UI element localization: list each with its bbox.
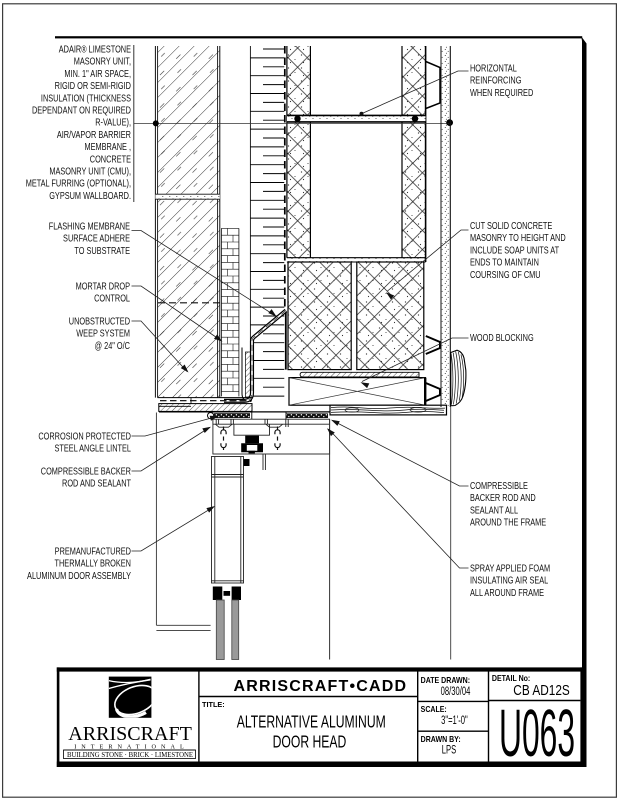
svg-text:MEMBRANE ,: MEMBRANE , [84,141,131,152]
svg-text:TITLE:: TITLE: [202,700,225,709]
svg-text:COMPRESSIBLE BACKER: COMPRESSIBLE BACKER [41,465,131,476]
svg-text:U063: U063 [499,696,575,771]
svg-text:ALL AROUND FRAME: ALL AROUND FRAME [470,587,544,598]
svg-text:CONTROL: CONTROL [94,293,130,304]
svg-text:COMPRESSIBLE: COMPRESSIBLE [470,480,528,491]
svg-text:BACKER ROD AND: BACKER ROD AND [470,492,536,503]
svg-text:CONCRETE: CONCRETE [90,153,131,164]
svg-text:SURFACE ADHERE: SURFACE ADHERE [63,233,130,244]
svg-text:DRAWN BY:: DRAWN BY: [421,735,461,745]
svg-text:WEEP SYSTEM: WEEP SYSTEM [76,328,130,339]
svg-text:SCALE:: SCALE: [421,705,447,715]
svg-text:MASONRY TO HEIGHT AND: MASONRY TO HEIGHT AND [470,232,566,243]
svg-text:RIGID OR SEMI-RIGID: RIGID OR SEMI-RIGID [55,80,131,91]
svg-text:UNOBSTRUCTED: UNOBSTRUCTED [69,315,130,326]
svg-text:CUT SOLID CONCRETE: CUT SOLID CONCRETE [470,220,552,231]
svg-text:ALUMINUM DOOR ASSEMBLY: ALUMINUM DOOR ASSEMBLY [27,570,131,581]
svg-text:BUILDING STONE · BRICK · LIMES: BUILDING STONE · BRICK · LIMESTONE [67,751,193,759]
svg-text:ADAIR® LIMESTONE: ADAIR® LIMESTONE [59,43,131,54]
svg-text:CORROSION PROTECTED: CORROSION PROTECTED [38,430,131,441]
svg-text:@ 24" O/C: @ 24" O/C [95,340,130,351]
svg-text:SPRAY APPLIED FOAM: SPRAY APPLIED FOAM [470,562,550,573]
svg-text:INSULATING AIR SEAL: INSULATING AIR SEAL [470,575,548,586]
svg-text:GYPSUM WALLBOARD.: GYPSUM WALLBOARD. [49,190,131,201]
svg-text:HORIZONTAL: HORIZONTAL [470,62,517,73]
svg-text:ARRISCRAFT: ARRISCRAFT [68,724,192,745]
svg-text:MORTAR DROP: MORTAR DROP [76,280,131,291]
svg-text:DATE DRAWN:: DATE DRAWN: [421,676,470,686]
svg-text:AROUND THE FRAME: AROUND THE FRAME [470,517,546,528]
svg-text:PREMANUFACTURED: PREMANUFACTURED [55,545,131,556]
svg-text:INSULATION (THICKNESS: INSULATION (THICKNESS [41,92,131,103]
svg-text:MIN. 1" AIR SPACE,: MIN. 1" AIR SPACE, [64,68,131,79]
svg-text:ROD AND SEALANT: ROD AND SEALANT [62,478,132,489]
svg-text:METAL FURRING (OPTIONAL),: METAL FURRING (OPTIONAL), [26,178,131,189]
svg-text:MASONRY UNIT,: MASONRY UNIT, [74,56,131,67]
svg-text:INCLUDE SOAP UNITS AT: INCLUDE SOAP UNITS AT [470,244,560,255]
svg-text:WHEN REQUIRED: WHEN REQUIRED [470,87,533,98]
svg-text:3"=1'-0": 3"=1'-0" [441,715,468,728]
svg-text:ENDS TO MAINTAIN: ENDS TO MAINTAIN [470,257,539,268]
svg-text:ALTERNATIVE ALUMINUM: ALTERNATIVE ALUMINUM [237,712,386,732]
svg-text:FLASHING MEMBRANE: FLASHING MEMBRANE [49,220,130,231]
svg-text:DOOR HEAD: DOOR HEAD [273,732,347,752]
svg-text:R-VALUE),: R-VALUE), [95,117,131,128]
svg-text:THERMALLY BROKEN: THERMALLY BROKEN [55,558,131,569]
svg-text:TO SUBSTRATE: TO SUBSTRATE [74,245,130,256]
svg-text:DETAIL No:: DETAIL No: [492,674,530,684]
svg-text:08/30/04: 08/30/04 [441,685,471,698]
svg-text:STEEL ANGLE LINTEL: STEEL ANGLE LINTEL [55,443,132,454]
svg-text:COURSING OF CMU: COURSING OF CMU [470,269,541,280]
svg-text:DEPENDANT ON REQUIRED: DEPENDANT ON REQUIRED [32,104,131,115]
svg-text:ARRISCRAFT•CADD: ARRISCRAFT•CADD [233,678,407,695]
svg-text:MASONRY UNIT (CMU),: MASONRY UNIT (CMU), [49,165,131,176]
svg-text:SEALANT ALL: SEALANT ALL [470,504,518,515]
svg-text:LPS: LPS [442,744,457,757]
svg-text:INTERNATIONAL: INTERNATIONAL [74,744,189,751]
svg-text:AIR/VAPOR BARRIER: AIR/VAPOR BARRIER [57,129,131,140]
svg-text:REINFORCING: REINFORCING [470,75,522,86]
svg-text:WOOD BLOCKING: WOOD BLOCKING [470,332,534,343]
